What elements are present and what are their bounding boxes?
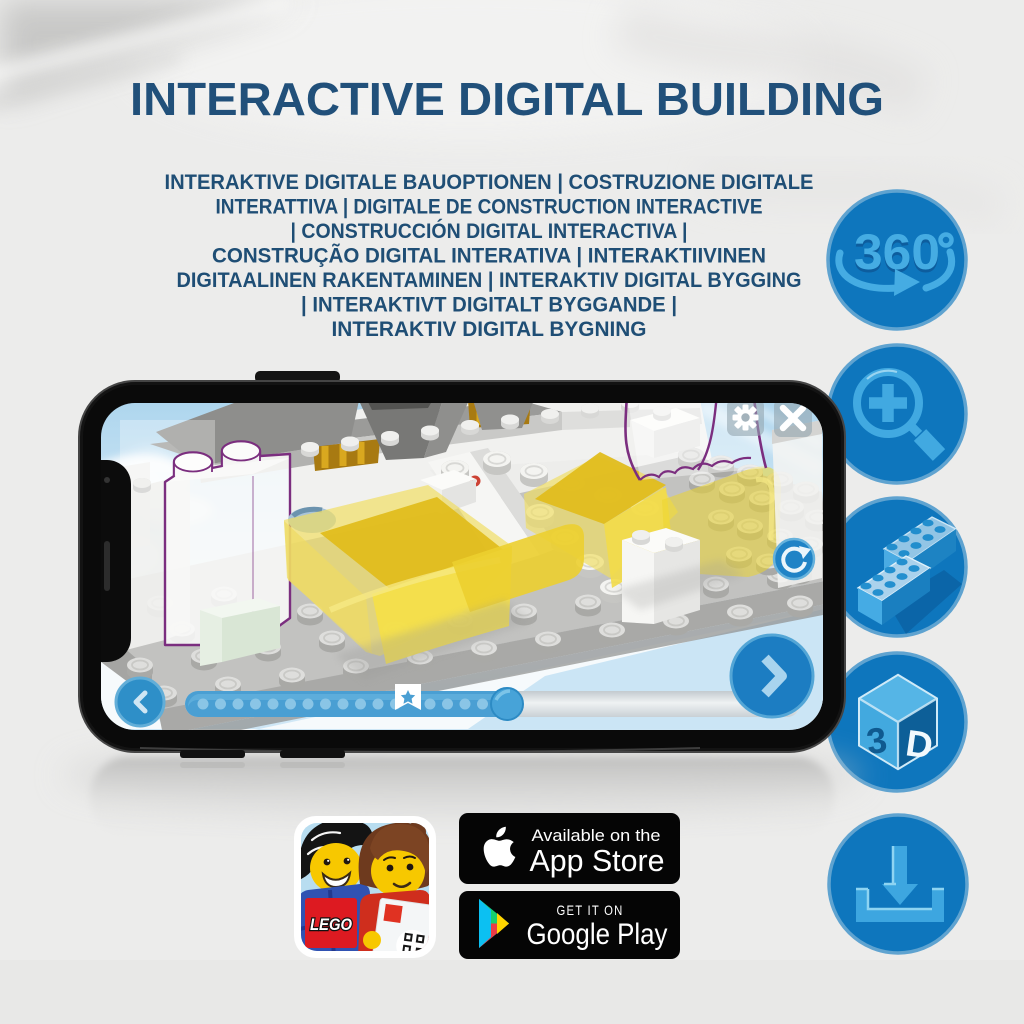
svg-text:Google Play: Google Play	[527, 918, 668, 951]
svg-text:App Store: App Store	[530, 843, 665, 878]
svg-text:INTERATTIVA | DIGITALE DE CONS: INTERATTIVA | DIGITALE DE CONSTRUCTION I…	[216, 196, 763, 219]
svg-text:CONSTRUÇÃO DIGITAL INTERATIVA: CONSTRUÇÃO DIGITAL INTERATIVA | INTERAKT…	[212, 245, 766, 268]
svg-text:INTERAKTIV DIGITAL BYGNING: INTERAKTIV DIGITAL BYGNING	[332, 318, 647, 341]
svg-text:INTERACTIVE DIGITAL BUILDING: INTERACTIVE DIGITAL BUILDING	[130, 73, 884, 125]
svg-text:D: D	[903, 722, 935, 766]
svg-text:DIGITAALINEN RAKENTAMINEN | IN: DIGITAALINEN RAKENTAMINEN | INTERAKTIV D…	[177, 269, 802, 292]
svg-text:| CONSTRUCCIÓN DIGITAL INTERAC: | CONSTRUCCIÓN DIGITAL INTERACTIVA |	[291, 219, 688, 243]
svg-text:INTERAKTIVE DIGITALE BAUOPTION: INTERAKTIVE DIGITALE BAUOPTIONEN | COSTR…	[165, 171, 814, 194]
svg-text:GET IT ON: GET IT ON	[557, 902, 624, 918]
svg-text:LEGO: LEGO	[310, 915, 352, 934]
svg-text:| INTERAKTIVT DIGITALT BYGGAND: | INTERAKTIVT DIGITALT BYGGANDE |	[301, 294, 677, 317]
